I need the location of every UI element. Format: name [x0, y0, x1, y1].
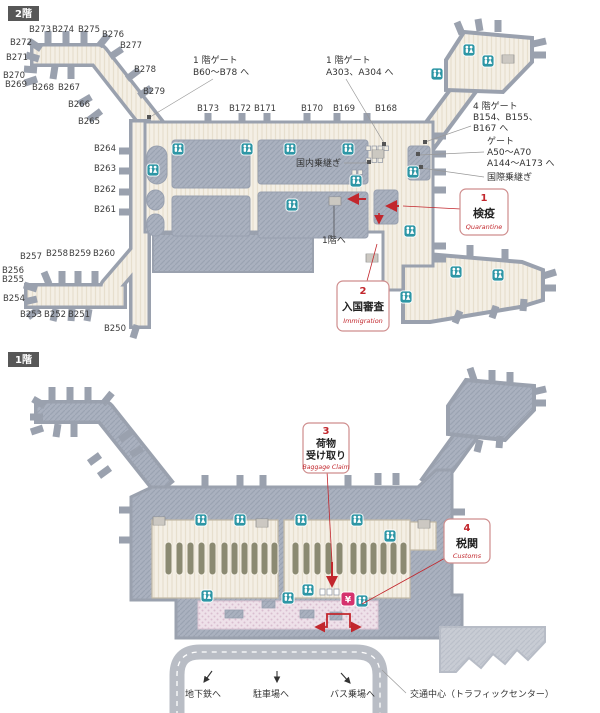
restroom-icon: [284, 143, 296, 155]
gate-label-b278: B278: [134, 65, 156, 75]
gate-label-b254: B254: [3, 294, 25, 304]
gate-label-b252: B252: [44, 310, 66, 320]
traffic-center-label: 交通中心（トラフィックセンター）: [410, 688, 554, 700]
checkpoint-1-quarantine: 1 検疫 Quarantine: [460, 189, 508, 235]
gate-label-b264: B264: [94, 144, 116, 154]
gate-label-b169: B169: [333, 104, 355, 114]
airport-terminal-map: B273B274B275B276B277B272B271B270B269B268…: [0, 0, 600, 713]
note-intl-transfer: 国際乗継ぎ: [487, 171, 532, 183]
gate-label-b172: B172: [229, 104, 251, 114]
gate-label-b272: B272: [10, 38, 32, 48]
restroom-icon: [282, 592, 294, 604]
gate-label-b268: B268: [32, 83, 54, 93]
gate-label-b250: B250: [104, 324, 126, 334]
restroom-icon: [147, 164, 159, 176]
gate-label-b255: B255: [2, 275, 24, 285]
floor2-badge: 2階: [8, 6, 39, 21]
gate-label-b275: B275: [78, 25, 100, 35]
customs-exit-counters: [320, 589, 339, 595]
restroom-icon: [450, 266, 462, 278]
gate-label-b279: B279: [143, 87, 165, 97]
restroom-icon: [356, 595, 368, 607]
baggage-carousel: [336, 542, 343, 575]
checkpoint-title-en: Immigration: [343, 317, 383, 325]
floor2-southwest-concourse: [37, 130, 140, 318]
gate-label-b269: B269: [5, 80, 27, 90]
note-gate-a: ゲート A50～A70 A144～A173 へ: [487, 135, 555, 169]
checkpoint-title-en: Quarantine: [466, 223, 502, 231]
restroom-icon: [286, 199, 298, 211]
restroom-icon: [404, 225, 416, 237]
gate-label-b277: B277: [120, 41, 142, 51]
restroom-icon: [407, 166, 419, 178]
restroom-icon: [241, 143, 253, 155]
restroom-icon: [482, 55, 494, 67]
checkpoint-4-customs: 4 税関 Customs: [444, 519, 490, 563]
floor1-badge-label: 1階: [15, 353, 32, 366]
restroom-icon: [172, 143, 184, 155]
restroom-icon: [492, 269, 504, 281]
baggage-carousel: [187, 542, 194, 575]
floor2-map: B273B274B275B276B277B272B271B270B269B268…: [2, 6, 556, 338]
checkpoint-number: 3: [323, 426, 330, 437]
baggage-carousel: [198, 542, 205, 575]
gate-label-b266: B266: [68, 100, 90, 110]
baggage-carousel: [370, 542, 377, 575]
note-gate-4f: 4 階ゲート B154、B155、 B167 へ: [473, 100, 541, 134]
ground-transport-labels: 地下鉄へ 駐車場へ バス乗場へ 交通中心（トラフィックセンター）: [185, 670, 554, 700]
checkpoint-title: 検疫: [473, 206, 495, 220]
checkpoint-number: 4: [464, 523, 471, 534]
restroom-icon: [400, 291, 412, 303]
gate-label-b251: B251: [68, 310, 90, 320]
gate-label-b253: B253: [20, 310, 42, 320]
gate-label-b262: B262: [94, 185, 116, 195]
baggage-carousel: [261, 542, 268, 575]
note-gate-1f-b60: 1 階ゲート B60～B78 へ: [193, 54, 249, 78]
restroom-icon: [384, 530, 396, 542]
restroom-icon: [431, 68, 443, 80]
checkpoint-number: 2: [360, 286, 367, 297]
gate-label-b271: B271: [6, 53, 28, 63]
floor1-northeast-concourse: [436, 380, 534, 477]
exit-bus-label: バス乗場へ: [330, 688, 375, 700]
checkpoint-3-baggage-claim: 3 荷物 受け取り Baggage Claim: [303, 423, 350, 473]
restroom-icon: [234, 514, 246, 526]
gate-label-b170: B170: [301, 104, 323, 114]
floor1-map: ¥ 3 荷物 受け取り Baggage Claim 4 税関 Cus: [8, 352, 554, 713]
checkpoint-title: 税関: [456, 536, 478, 550]
checkpoint-title: 入国審査: [342, 300, 384, 313]
exit-subway-label: 地下鉄へ: [185, 688, 221, 700]
baggage-carousel: [251, 542, 258, 575]
checkpoint-number: 1: [481, 193, 488, 204]
checkpoint-2-immigration: 2 入国審査 Immigration: [337, 281, 389, 331]
baggage-carousel: [303, 542, 310, 575]
gate-label-b258: B258: [46, 249, 68, 259]
note-gate-1f-a303: 1 階ゲート A303、A304 へ: [326, 54, 394, 78]
checkpoint-title: 荷物: [315, 437, 336, 450]
baggage-carousel: [231, 542, 238, 575]
baggage-carousel: [380, 542, 387, 575]
restroom-icon: [342, 143, 354, 155]
restroom-icon: [295, 514, 307, 526]
checkpoint-title-en: Baggage Claim: [303, 464, 350, 471]
restroom-icon: [201, 590, 213, 602]
gate-label-b261: B261: [94, 205, 116, 215]
gate-label-b274: B274: [52, 25, 74, 35]
baggage-carousel: [165, 542, 172, 575]
baggage-carousel: [350, 542, 357, 575]
baggage-carousel: [360, 542, 367, 575]
restroom-icon: [195, 514, 207, 526]
gate-label-b265: B265: [78, 117, 100, 127]
gate-label-b171: B171: [254, 104, 276, 114]
gate-label-b263: B263: [94, 164, 116, 174]
baggage-carousel: [176, 542, 183, 575]
currency-exchange-icon: ¥: [341, 592, 355, 606]
baggage-carousel: [390, 542, 397, 575]
floor2-badge-label: 2階: [15, 7, 32, 20]
gate-label-b273: B273: [29, 25, 51, 35]
gate-label-b257: B257: [20, 252, 42, 262]
restroom-icon: [350, 175, 362, 187]
baggage-carousel: [209, 542, 216, 575]
baggage-carousel: [271, 542, 278, 575]
baggage-carousel: [221, 542, 228, 575]
floor1-badge: 1階: [8, 352, 39, 367]
gate-label-b276: B276: [102, 30, 124, 40]
restroom-icon: [463, 44, 475, 56]
restroom-icon: [351, 514, 363, 526]
floor2-lower-block: [153, 234, 313, 272]
note-domestic-transfer: 国内乗継ぎ: [296, 157, 341, 169]
baggage-carousel: [241, 542, 248, 575]
gate-label-b259: B259: [69, 249, 91, 259]
gate-label-b173: B173: [197, 104, 219, 114]
baggage-carousel: [292, 542, 299, 575]
checkpoint-title-en: Customs: [453, 552, 482, 560]
yen-symbol: ¥: [345, 596, 352, 606]
exit-parking-label: 駐車場へ: [253, 688, 289, 700]
baggage-carousel: [314, 542, 321, 575]
gate-label-b267: B267: [58, 83, 80, 93]
floor1-southeast-concourse: [440, 627, 545, 672]
baggage-carousel: [400, 542, 407, 575]
checkpoint-title2: 受け取り: [306, 449, 346, 462]
restroom-icon: [302, 584, 314, 596]
gate-label-b260: B260: [93, 249, 115, 259]
note-to-1f: 1階へ: [322, 235, 346, 246]
gate-label-b168: B168: [375, 104, 397, 114]
